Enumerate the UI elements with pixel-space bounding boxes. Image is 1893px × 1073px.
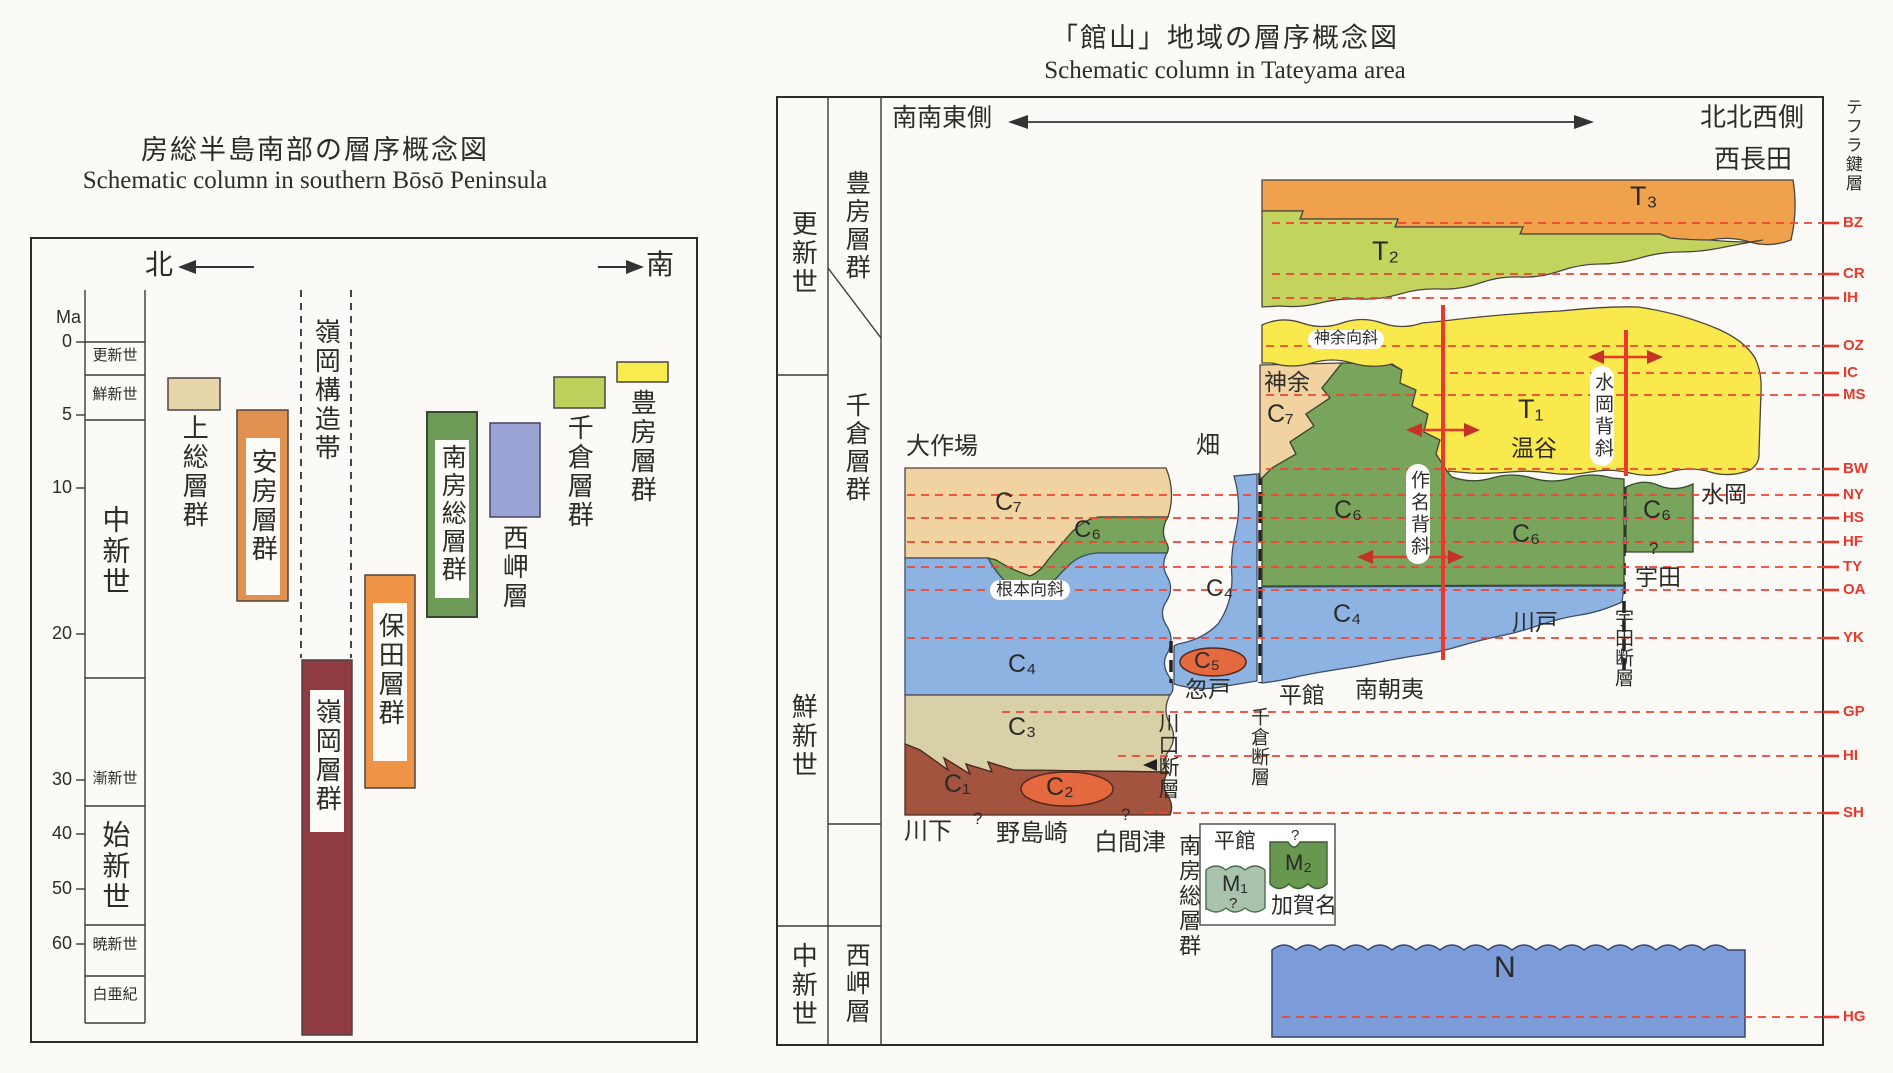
north-arrowhead [178, 260, 196, 274]
tephra-ih: IH [1843, 290, 1858, 306]
label-c2: C₂ [1046, 774, 1074, 800]
tephra-ny: NY [1843, 487, 1864, 503]
tephra-cr: CR [1843, 266, 1865, 282]
tephra-hg: HG [1843, 1009, 1866, 1025]
uda-fault-label: 宇田断層 [1612, 608, 1632, 688]
tephra-bw: BW [1843, 461, 1868, 477]
label-m1: M₁ [1222, 872, 1248, 895]
question-m1: ? [1229, 896, 1237, 912]
question-kawashimo: ? [973, 810, 982, 828]
tick-10: 10 [32, 478, 72, 497]
tick-50: 50 [32, 879, 72, 898]
tephra-hi: HI [1843, 748, 1858, 764]
nnw-side-label: 北北西側 [1700, 104, 1804, 131]
epoch-oligocene: 漸新世 [87, 772, 143, 788]
label-n: N [1494, 952, 1516, 984]
label-c4-middle: C₄ [1333, 601, 1361, 627]
place-kawado: 川戸 [1512, 611, 1558, 635]
sakuna-anticline-label: 作名背斜 [1406, 464, 1430, 564]
label-t1: T₁ [1518, 395, 1544, 423]
epoch-paleocene: 暁新世 [87, 938, 143, 954]
tephra-hf: HF [1843, 534, 1863, 550]
tick-0: 0 [32, 332, 72, 351]
label-c6-right-a: C₆ [1512, 521, 1540, 547]
label-c1: C₁ [944, 771, 971, 797]
label-c4-left: C₄ [1008, 651, 1036, 677]
place-shiramazu: 白間津 [1094, 831, 1166, 856]
label-c7-kanamari: C₇ [1267, 401, 1294, 427]
right-epoch-miocene: 中新世 [789, 942, 816, 1029]
epoch-pliocene: 鮮新世 [87, 388, 143, 404]
right-group-toyofusa: 豊房層群 [842, 170, 868, 282]
label-c6-middle: C₆ [1334, 497, 1362, 523]
right-group-nishizaki: 西岬層 [842, 942, 868, 1026]
mizuoka-anticline-label: 水岡背斜 [1590, 366, 1614, 466]
bar-nishizaki-formation [490, 423, 540, 517]
place-hata: 畑 [1196, 434, 1220, 459]
label-t2: T₂ [1372, 237, 1399, 265]
epoch-eocene: 始新世 [99, 820, 128, 913]
chikura-fault-label: 千倉断層 [1248, 707, 1268, 787]
ma-axis-unit: Ma [56, 308, 81, 327]
place-nojimazaki: 野島崎 [996, 822, 1068, 847]
place-nukutani: 温谷 [1511, 437, 1557, 461]
place-minamiasai: 南朝夷 [1355, 678, 1424, 702]
label-awa-group: 安房層群 [249, 448, 276, 564]
label-toyofusa-group-left: 豊房層群 [628, 389, 655, 505]
tephra-sh: SH [1843, 805, 1864, 821]
tephra-ms: MS [1843, 387, 1866, 403]
minamiboso-group-label: 南房総層群 [1177, 834, 1200, 959]
sse-side-label: 南南東側 [892, 106, 992, 132]
tick-5: 5 [32, 405, 72, 424]
place-tatakiyakata-main: 平館 [1279, 684, 1325, 708]
tephra-gp: GP [1843, 704, 1865, 720]
right-epoch-pleistocene: 更新世 [789, 210, 816, 297]
figure-canvas: 房総半島南部の層序概念図 Schematic column in souther… [0, 0, 1893, 1073]
place-kawashimo: 川下 [904, 820, 952, 845]
tick-40: 40 [32, 824, 72, 843]
sse-arrowhead [1008, 115, 1028, 129]
bar-toyofusa-group [617, 362, 668, 382]
epoch-pleistocene: 更新世 [87, 349, 143, 365]
question-shiramazu: ? [1121, 806, 1130, 824]
label-nishizaki-formation-left: 西岬層 [500, 524, 527, 611]
label-c6-right-b: C₆ [1643, 497, 1671, 523]
label-hota-group: 保田層群 [376, 612, 403, 728]
kanamari-syncline-label: 神余向斜 [1308, 330, 1384, 349]
place-kotto: 忽戸 [1185, 678, 1231, 702]
period-cretaceous: 白亜紀 [87, 988, 143, 1004]
tick-20: 20 [32, 624, 72, 643]
place-uda: 宇田 [1635, 566, 1681, 590]
tephra-ic: IC [1843, 365, 1858, 381]
place-nishinagata: 西長田 [1714, 146, 1792, 173]
label-c4-strip: C₄ [1206, 576, 1233, 601]
label-mineoka-group: 嶺岡層群 [313, 698, 340, 814]
place-mizuoka: 水岡 [1701, 483, 1747, 507]
question-c6-right: ? [1649, 540, 1658, 558]
tephra-bz: BZ [1843, 215, 1863, 231]
place-daisakuba: 大作場 [906, 435, 978, 460]
label-c7-left: C₇ [995, 489, 1022, 515]
right-group-chikura: 千倉層群 [842, 392, 868, 504]
south-arrowhead [626, 260, 644, 274]
label-c3: C₃ [1008, 714, 1036, 740]
epoch-miocene: 中新世 [99, 505, 128, 598]
label-kazusa-group: 上総層群 [180, 414, 207, 530]
kawaguchi-fault-label: 川口断層 [1157, 712, 1179, 800]
place-tatakiyakata-box: 平館 [1214, 830, 1256, 852]
label-mineoka-belt: 嶺岡構造帯 [312, 318, 339, 463]
tephra-yk: YK [1843, 630, 1864, 646]
tephra-hs: HS [1843, 510, 1864, 526]
label-m2: M₂ [1285, 851, 1312, 874]
question-m2: ? [1291, 828, 1299, 844]
right-epoch-pliocene: 鮮新世 [789, 693, 816, 780]
nnw-arrowhead [1574, 115, 1594, 129]
label-minamiboso-group-left: 南房総層群 [438, 444, 464, 584]
tick-60: 60 [32, 934, 72, 953]
bar-chikura-group [554, 377, 605, 408]
right-title-en: Schematic column in Tateyama area [975, 58, 1475, 84]
place-kagana: 加賀名 [1271, 894, 1337, 917]
left-title-ja: 房総半島南部の層序概念図 [65, 136, 565, 164]
left-title-en: Schematic column in southern Bōsō Penins… [65, 168, 565, 194]
tephra-ty: TY [1843, 559, 1862, 575]
label-c6-lens: C₆ [1074, 517, 1101, 542]
south-label: 南 [646, 251, 674, 280]
right-title-ja: 「館山」地域の層序概念図 [975, 24, 1475, 52]
tephra-ticks [1823, 223, 1839, 1017]
tephra-oa: OA [1843, 582, 1866, 598]
label-t3: T₃ [1630, 182, 1658, 210]
tick-30: 30 [32, 770, 72, 789]
label-chikura-group-left: 千倉層群 [565, 414, 592, 530]
nemoto-syncline-label: 根本向斜 [990, 580, 1070, 600]
north-label: 北 [145, 251, 173, 280]
tephra-oz: OZ [1843, 338, 1864, 354]
label-c5: C₅ [1194, 648, 1220, 672]
tephra-column-label: テフラ鍵層 [1843, 98, 1861, 193]
place-kanamari: 神余 [1264, 371, 1310, 395]
bar-kazusa-group [168, 378, 220, 410]
